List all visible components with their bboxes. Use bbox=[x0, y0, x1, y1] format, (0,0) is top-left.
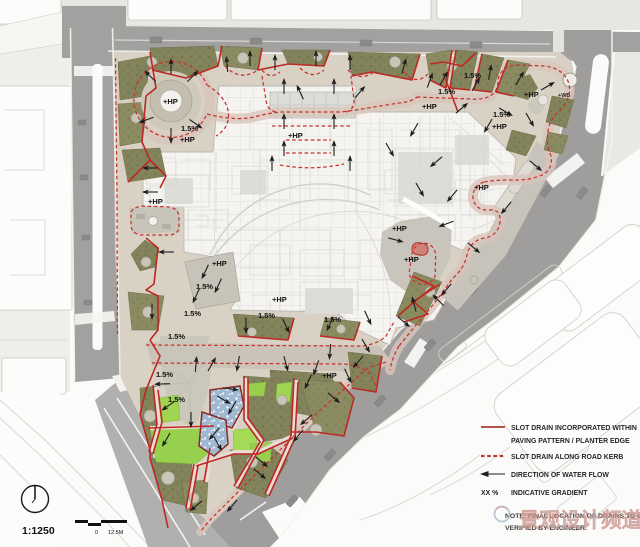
svg-text:1.5%: 1.5% bbox=[464, 71, 481, 80]
svg-text:1:1250: 1:1250 bbox=[22, 525, 55, 537]
svg-text:PAVING PATTERN / PLANTER EDGE: PAVING PATTERN / PLANTER EDGE bbox=[511, 438, 630, 445]
svg-text:1.5%: 1.5% bbox=[156, 370, 173, 379]
svg-text:+HP: +HP bbox=[272, 295, 287, 304]
svg-text:1.5%: 1.5% bbox=[438, 87, 455, 96]
svg-text:1.5%: 1.5% bbox=[324, 315, 341, 324]
svg-text:SLOT DRAIN INCORPORATED WITHIN: SLOT DRAIN INCORPORATED WITHIN bbox=[511, 425, 637, 432]
svg-text:+HP: +HP bbox=[148, 197, 163, 206]
svg-text:+HP: +HP bbox=[392, 224, 407, 233]
svg-text:SLOT DRAIN ALONG ROAD KERB: SLOT DRAIN ALONG ROAD KERB bbox=[511, 454, 623, 461]
svg-text:1.5%: 1.5% bbox=[258, 311, 275, 320]
svg-text:XX %: XX % bbox=[481, 490, 498, 497]
svg-text:+HP: +HP bbox=[288, 131, 303, 140]
svg-text:1.5%: 1.5% bbox=[493, 110, 510, 119]
svg-text:DIRECTION OF WATER FLOW: DIRECTION OF WATER FLOW bbox=[511, 472, 609, 479]
svg-text:0: 0 bbox=[95, 530, 98, 536]
svg-text:1.5%: 1.5% bbox=[196, 282, 213, 291]
svg-text:+HP: +HP bbox=[524, 90, 539, 99]
svg-text:INDICATIVE GRADIENT: INDICATIVE GRADIENT bbox=[511, 490, 588, 497]
svg-text:+HP: +HP bbox=[163, 97, 178, 106]
svg-text:+HP: +HP bbox=[322, 371, 337, 380]
svg-text:1.5%: 1.5% bbox=[184, 309, 201, 318]
svg-text:12.5M: 12.5M bbox=[108, 530, 124, 536]
svg-text:+HP: +HP bbox=[492, 122, 507, 131]
svg-text:1.5%: 1.5% bbox=[181, 124, 198, 133]
svg-text:1.5%: 1.5% bbox=[168, 395, 185, 404]
svg-text:+HP: +HP bbox=[180, 135, 195, 144]
svg-text:景观设计频道: 景观设计频道 bbox=[519, 508, 640, 532]
svg-text:1.5%: 1.5% bbox=[168, 332, 185, 341]
svg-text:+HP: +HP bbox=[422, 102, 437, 111]
svg-text:+HP: +HP bbox=[404, 255, 419, 264]
svg-text:+HP: +HP bbox=[212, 259, 227, 268]
svg-text:+HP: +HP bbox=[474, 183, 489, 192]
